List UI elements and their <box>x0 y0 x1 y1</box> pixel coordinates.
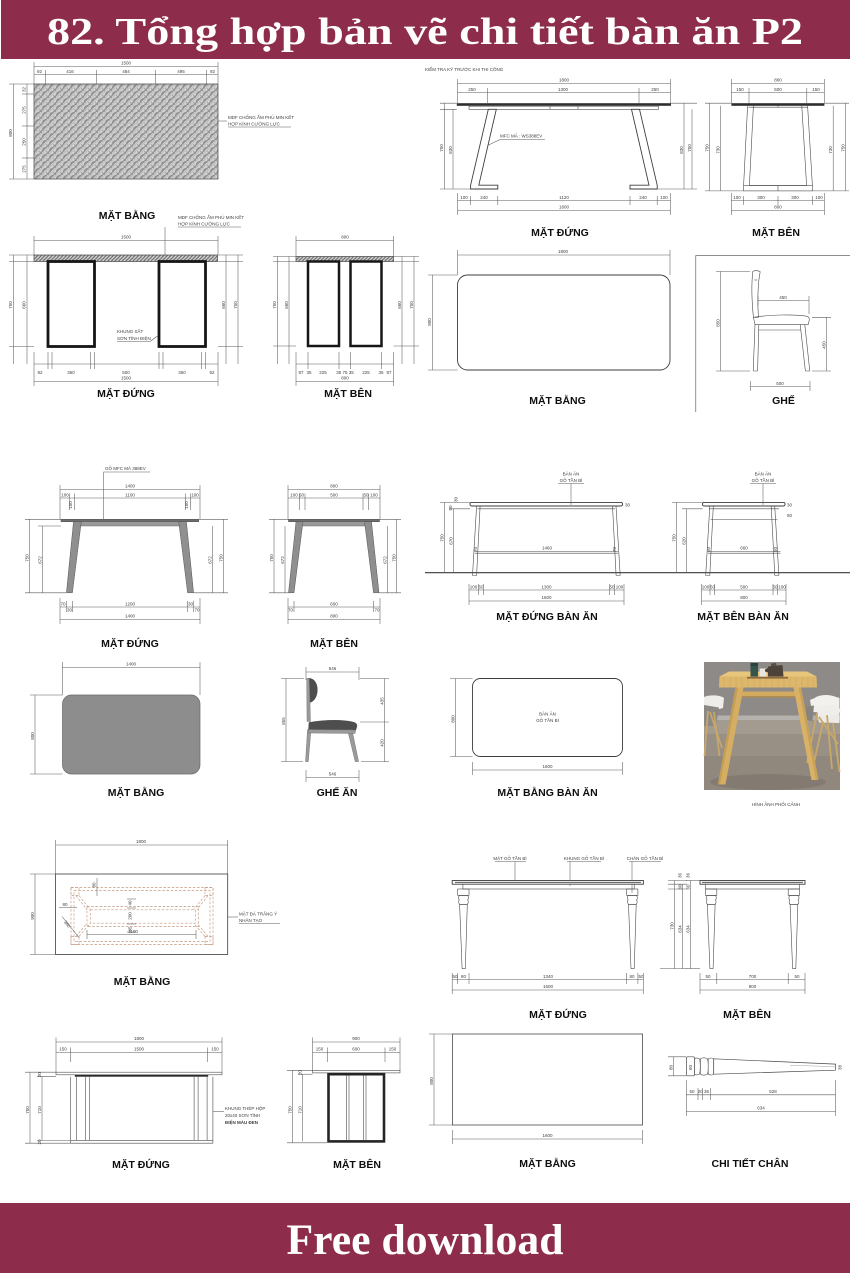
svg-text:GHẾ ĂN: GHẾ ĂN <box>317 786 358 799</box>
svg-text:660: 660 <box>397 301 402 309</box>
svg-text:600: 600 <box>352 1047 360 1052</box>
svg-text:800: 800 <box>774 205 782 210</box>
svg-text:500: 500 <box>330 493 338 498</box>
svg-text:70: 70 <box>374 608 380 613</box>
svg-text:1400: 1400 <box>125 484 136 489</box>
svg-text:20: 20 <box>698 1089 704 1094</box>
svg-text:50: 50 <box>689 1089 695 1094</box>
svg-text:750: 750 <box>219 554 224 562</box>
svg-text:1100: 1100 <box>125 493 135 498</box>
svg-text:750: 750 <box>272 301 277 309</box>
svg-text:GỖ TẦN BÌ: GỖ TẦN BÌ <box>752 477 775 483</box>
svg-text:710: 710 <box>37 1106 42 1114</box>
svg-text:500: 500 <box>740 584 748 589</box>
svg-text:KHUNG SẮT: KHUNG SẮT <box>117 327 144 334</box>
svg-text:SƠN TĨNH ĐIỆN: SƠN TĨNH ĐIỆN <box>117 334 151 341</box>
svg-text:36: 36 <box>704 1089 710 1094</box>
svg-text:80: 80 <box>461 974 467 979</box>
svg-text:710: 710 <box>298 1106 303 1114</box>
svg-text:1600: 1600 <box>541 595 552 600</box>
svg-text:50: 50 <box>787 513 793 518</box>
svg-text:1300: 1300 <box>541 584 552 589</box>
svg-text:750: 750 <box>705 144 710 152</box>
svg-text:38: 38 <box>838 1065 843 1071</box>
svg-text:360: 360 <box>67 370 75 375</box>
svg-text:30: 30 <box>188 602 194 607</box>
svg-text:200: 200 <box>128 912 133 920</box>
svg-text:20: 20 <box>37 1139 42 1145</box>
svg-text:BÀN ĂN: BÀN ĂN <box>539 711 556 717</box>
svg-text:92: 92 <box>209 370 215 375</box>
svg-text:MFC MÃ : WS388EV: MFC MÃ : WS388EV <box>500 133 542 139</box>
svg-text:KHUNG GỖ TẦN BÌ: KHUNG GỖ TẦN BÌ <box>564 855 604 861</box>
svg-text:1500: 1500 <box>121 376 132 381</box>
svg-text:750: 750 <box>288 1106 293 1114</box>
svg-text:484: 484 <box>122 69 130 74</box>
svg-text:800: 800 <box>330 484 338 489</box>
svg-text:900: 900 <box>352 1036 360 1041</box>
svg-text:250: 250 <box>468 87 476 92</box>
svg-text:100: 100 <box>470 584 478 589</box>
svg-text:672: 672 <box>38 556 43 564</box>
svg-text:MẶT BÊN: MẶT BÊN <box>324 387 372 400</box>
svg-text:80: 80 <box>62 902 68 907</box>
svg-text:750: 750 <box>25 1106 30 1114</box>
svg-text:36: 36 <box>686 873 691 879</box>
svg-text:528: 528 <box>769 1089 777 1094</box>
svg-text:20: 20 <box>298 1070 303 1076</box>
svg-text:300: 300 <box>791 195 799 200</box>
svg-text:660: 660 <box>740 546 748 551</box>
svg-text:50: 50 <box>794 974 800 979</box>
svg-text:546: 546 <box>329 666 337 671</box>
svg-text:50: 50 <box>452 974 458 979</box>
svg-text:800: 800 <box>330 614 338 619</box>
svg-text:800: 800 <box>30 732 35 740</box>
svg-text:50: 50 <box>638 974 644 979</box>
svg-text:750: 750 <box>8 301 13 309</box>
svg-text:100: 100 <box>370 493 378 498</box>
svg-text:HỢP KÍNH CƯỜNG LỰC: HỢP KÍNH CƯỜNG LỰC <box>178 221 231 227</box>
svg-text:100: 100 <box>778 584 786 589</box>
svg-text:450: 450 <box>822 341 827 349</box>
svg-text:60: 60 <box>678 884 683 890</box>
svg-text:750: 750 <box>233 301 238 309</box>
svg-text:32: 32 <box>22 87 27 93</box>
svg-text:CHÂN GỖ TẦN BÌ: CHÂN GỖ TẦN BÌ <box>627 855 664 861</box>
svg-text:830: 830 <box>679 146 684 154</box>
svg-text:800: 800 <box>427 318 432 326</box>
svg-text:420: 420 <box>380 739 385 747</box>
svg-text:70: 70 <box>612 547 617 553</box>
svg-text:100: 100 <box>660 195 668 200</box>
svg-text:MẶT BÊN: MẶT BÊN <box>752 226 800 239</box>
svg-text:80: 80 <box>92 882 97 888</box>
svg-text:1460: 1460 <box>542 546 553 551</box>
svg-text:50: 50 <box>299 493 305 498</box>
svg-text:100: 100 <box>61 493 69 498</box>
svg-text:45: 45 <box>128 926 133 932</box>
svg-text:KIỂM TRA KỸ TRƯỚC KHI THI CÔNG: KIỂM TRA KỸ TRƯỚC KHI THI CÔNG <box>425 66 504 72</box>
svg-text:BÀN ĂN: BÀN ĂN <box>755 471 772 477</box>
svg-text:MẶT ĐÁ TRẮNG Ý: MẶT ĐÁ TRẮNG Ý <box>239 910 277 917</box>
svg-text:1500: 1500 <box>121 61 132 66</box>
svg-text:800: 800 <box>749 984 757 989</box>
svg-text:660: 660 <box>221 301 226 309</box>
svg-text:546: 546 <box>329 772 337 777</box>
svg-text:100: 100 <box>616 584 624 589</box>
svg-text:NHÂN TẠO: NHÂN TẠO <box>239 917 263 923</box>
svg-text:1300: 1300 <box>558 87 569 92</box>
svg-text:20x40 SƠN TĨNH: 20x40 SƠN TĨNH <box>225 1112 260 1118</box>
svg-text:30: 30 <box>67 608 73 613</box>
svg-text:50: 50 <box>773 547 778 553</box>
svg-text:1600: 1600 <box>542 764 553 769</box>
svg-text:MDF CHỐNG ẨM PHỦ MIN KẾT: MDF CHỐNG ẨM PHỦ MIN KẾT <box>178 214 244 220</box>
svg-text:300: 300 <box>757 195 765 200</box>
svg-text:MẶT BÊN: MẶT BÊN <box>723 1008 771 1021</box>
svg-text:750: 750 <box>687 144 692 152</box>
svg-text:1500: 1500 <box>134 1047 145 1052</box>
svg-text:1500: 1500 <box>121 235 132 240</box>
svg-text:670: 670 <box>449 537 454 545</box>
svg-text:150: 150 <box>59 1047 67 1052</box>
svg-text:150: 150 <box>736 87 744 92</box>
svg-text:87: 87 <box>386 370 392 375</box>
svg-text:750: 750 <box>672 534 677 542</box>
svg-text:40: 40 <box>128 900 133 906</box>
svg-text:240: 240 <box>480 195 488 200</box>
svg-text:50: 50 <box>705 974 711 979</box>
svg-text:80: 80 <box>668 1065 673 1071</box>
svg-text:450: 450 <box>779 295 787 300</box>
svg-text:MDF CHỐNG ẨM PHỦ MIN KẾT: MDF CHỐNG ẨM PHỦ MIN KẾT <box>228 114 294 120</box>
svg-text:100: 100 <box>702 584 710 589</box>
svg-text:672: 672 <box>383 556 388 564</box>
svg-text:360: 360 <box>178 370 186 375</box>
svg-text:MẶT BẰNG BÀN ĂN: MẶT BẰNG BÀN ĂN <box>497 786 597 799</box>
svg-text:MẶT BẰNG: MẶT BẰNG <box>99 209 156 222</box>
svg-text:500: 500 <box>776 381 784 386</box>
svg-text:35: 35 <box>306 370 312 375</box>
svg-text:1600: 1600 <box>543 984 554 989</box>
svg-text:MẶT ĐỨNG BÀN ĂN: MẶT ĐỨNG BÀN ĂN <box>496 610 597 623</box>
svg-text:250: 250 <box>22 138 27 146</box>
svg-text:750: 750 <box>439 144 444 152</box>
svg-text:750: 750 <box>269 554 274 562</box>
svg-text:750: 750 <box>392 554 397 562</box>
svg-text:850: 850 <box>715 319 720 327</box>
svg-text:800: 800 <box>341 235 349 240</box>
svg-text:30: 30 <box>625 503 631 508</box>
svg-text:KHUNG THÉP HỘP: KHUNG THÉP HỘP <box>225 1105 265 1111</box>
svg-text:750: 750 <box>25 554 30 562</box>
svg-text:150: 150 <box>316 1047 324 1052</box>
svg-text:750: 750 <box>409 301 414 309</box>
svg-text:150: 150 <box>389 1047 397 1052</box>
svg-text:80: 80 <box>629 974 635 979</box>
svg-text:240: 240 <box>639 195 647 200</box>
svg-text:730: 730 <box>670 922 675 930</box>
svg-text:250: 250 <box>651 87 659 92</box>
svg-text:1400: 1400 <box>125 614 136 619</box>
svg-text:MẶT BẰNG: MẶT BẰNG <box>529 394 586 407</box>
svg-text:150: 150 <box>184 501 189 509</box>
svg-text:150: 150 <box>812 87 820 92</box>
svg-text:35 75 35: 35 75 35 <box>336 370 354 375</box>
svg-text:GỖ MFC MÃ 388EV: GỖ MFC MÃ 388EV <box>105 465 146 471</box>
svg-text:800: 800 <box>8 129 13 137</box>
svg-text:MẶT ĐỨNG: MẶT ĐỨNG <box>529 1008 587 1021</box>
svg-text:1200: 1200 <box>125 602 136 607</box>
svg-text:ĐIỆN MÀU ĐEN: ĐIỆN MÀU ĐEN <box>225 1118 258 1125</box>
svg-text:634: 634 <box>757 1106 765 1111</box>
svg-text:100: 100 <box>290 493 298 498</box>
svg-text:1120: 1120 <box>559 195 569 200</box>
svg-text:MẶT ĐỨNG: MẶT ĐỨNG <box>101 637 159 650</box>
svg-text:500: 500 <box>122 370 130 375</box>
svg-text:70: 70 <box>473 547 478 553</box>
svg-text:495: 495 <box>177 69 185 74</box>
svg-text:50: 50 <box>448 505 453 511</box>
svg-text:634: 634 <box>686 925 691 933</box>
svg-text:1800: 1800 <box>559 78 570 83</box>
svg-text:150: 150 <box>211 1047 219 1052</box>
svg-text:30: 30 <box>787 503 793 508</box>
svg-text:660: 660 <box>284 301 289 309</box>
svg-text:1800: 1800 <box>134 1036 145 1041</box>
svg-text:730: 730 <box>828 146 833 154</box>
svg-text:855: 855 <box>281 717 286 725</box>
svg-text:416: 416 <box>66 69 74 74</box>
svg-text:750: 750 <box>440 534 445 542</box>
svg-text:GHẾ: GHẾ <box>772 394 795 407</box>
svg-text:GỖ TẦN BÌ: GỖ TẦN BÌ <box>560 477 583 483</box>
svg-text:800: 800 <box>774 78 782 83</box>
svg-text:HÌNH ẢNH PHỐI CẢNH: HÌNH ẢNH PHỐI CẢNH <box>752 801 800 807</box>
svg-text:BÀN ĂN: BÀN ĂN <box>563 471 580 477</box>
svg-text:MẶT BẰNG: MẶT BẰNG <box>108 786 165 799</box>
svg-text:750: 750 <box>841 144 846 152</box>
svg-text:275: 275 <box>22 106 27 114</box>
svg-text:MẶT BẰNG: MẶT BẰNG <box>114 975 171 988</box>
svg-text:20: 20 <box>37 1072 42 1078</box>
svg-text:100: 100 <box>191 493 199 498</box>
svg-text:800: 800 <box>429 1077 434 1085</box>
svg-text:500: 500 <box>774 87 782 92</box>
svg-text:1340: 1340 <box>543 974 554 979</box>
svg-text:630: 630 <box>448 146 453 154</box>
svg-text:150: 150 <box>68 501 73 509</box>
svg-text:50: 50 <box>478 584 484 589</box>
svg-text:MẶT ĐỨNG: MẶT ĐỨNG <box>531 226 589 239</box>
svg-text:50: 50 <box>706 547 711 553</box>
svg-text:36: 36 <box>678 873 683 879</box>
svg-text:70: 70 <box>194 608 200 613</box>
svg-text:MẶT ĐỨNG: MẶT ĐỨNG <box>97 387 155 400</box>
svg-text:GỖ TẦN BÌ: GỖ TẦN BÌ <box>536 717 559 723</box>
svg-text:1400: 1400 <box>126 662 137 667</box>
svg-text:1800: 1800 <box>136 839 147 844</box>
svg-text:1800: 1800 <box>558 249 569 254</box>
svg-text:100: 100 <box>460 195 468 200</box>
svg-text:50: 50 <box>609 584 615 589</box>
svg-text:MẶT BẰNG: MẶT BẰNG <box>519 1157 576 1170</box>
svg-text:CHI TIẾT CHÂN: CHI TIẾT CHÂN <box>712 1157 789 1170</box>
svg-text:MẶT BÊN: MẶT BÊN <box>333 1158 381 1171</box>
svg-text:MẶT GỖ TẦN BÌ: MẶT GỖ TẦN BÌ <box>493 855 526 861</box>
svg-text:275: 275 <box>22 165 27 173</box>
svg-text:35: 35 <box>378 370 384 375</box>
svg-text:82. Tổng hợp bản vẽ chi tiết b: 82. Tổng hợp bản vẽ chi tiết bàn ăn P2 <box>47 11 803 53</box>
svg-text:730: 730 <box>715 146 720 154</box>
svg-text:70: 70 <box>60 602 66 607</box>
svg-text:50: 50 <box>710 584 716 589</box>
svg-text:92: 92 <box>210 69 216 74</box>
svg-text:100: 100 <box>733 195 741 200</box>
svg-text:100: 100 <box>815 195 823 200</box>
svg-text:MẶT BÊN: MẶT BÊN <box>310 637 358 650</box>
svg-text:1600: 1600 <box>542 1133 553 1138</box>
svg-text:1800: 1800 <box>559 205 570 210</box>
svg-text:92: 92 <box>37 370 43 375</box>
svg-text:70: 70 <box>288 608 294 613</box>
svg-text:700: 700 <box>749 974 757 979</box>
svg-text:50: 50 <box>363 493 369 498</box>
svg-text:600: 600 <box>330 602 338 607</box>
svg-text:800: 800 <box>341 376 349 381</box>
svg-text:672: 672 <box>208 556 213 564</box>
svg-text:60: 60 <box>686 884 691 890</box>
svg-text:435: 435 <box>380 697 385 705</box>
svg-text:900: 900 <box>30 912 35 920</box>
svg-text:60: 60 <box>688 1065 693 1071</box>
svg-text:800: 800 <box>451 715 456 723</box>
svg-text:MẶT BÊN BÀN ĂN: MẶT BÊN BÀN ĂN <box>697 610 789 623</box>
svg-text:225: 225 <box>362 370 370 375</box>
svg-text:50: 50 <box>772 584 778 589</box>
svg-text:HỢP KÍNH CƯỜNG LỰC: HỢP KÍNH CƯỜNG LỰC <box>228 121 281 127</box>
svg-text:800: 800 <box>740 595 748 600</box>
svg-text:225: 225 <box>319 370 327 375</box>
svg-text:660: 660 <box>22 301 27 309</box>
svg-text:MẶT ĐỨNG: MẶT ĐỨNG <box>112 1158 170 1171</box>
svg-text:92: 92 <box>37 69 43 74</box>
svg-text:620: 620 <box>682 537 687 545</box>
svg-text:Free download: Free download <box>287 1217 564 1264</box>
svg-text:87: 87 <box>298 370 304 375</box>
svg-text:30: 30 <box>454 497 459 503</box>
svg-text:672: 672 <box>280 556 285 564</box>
